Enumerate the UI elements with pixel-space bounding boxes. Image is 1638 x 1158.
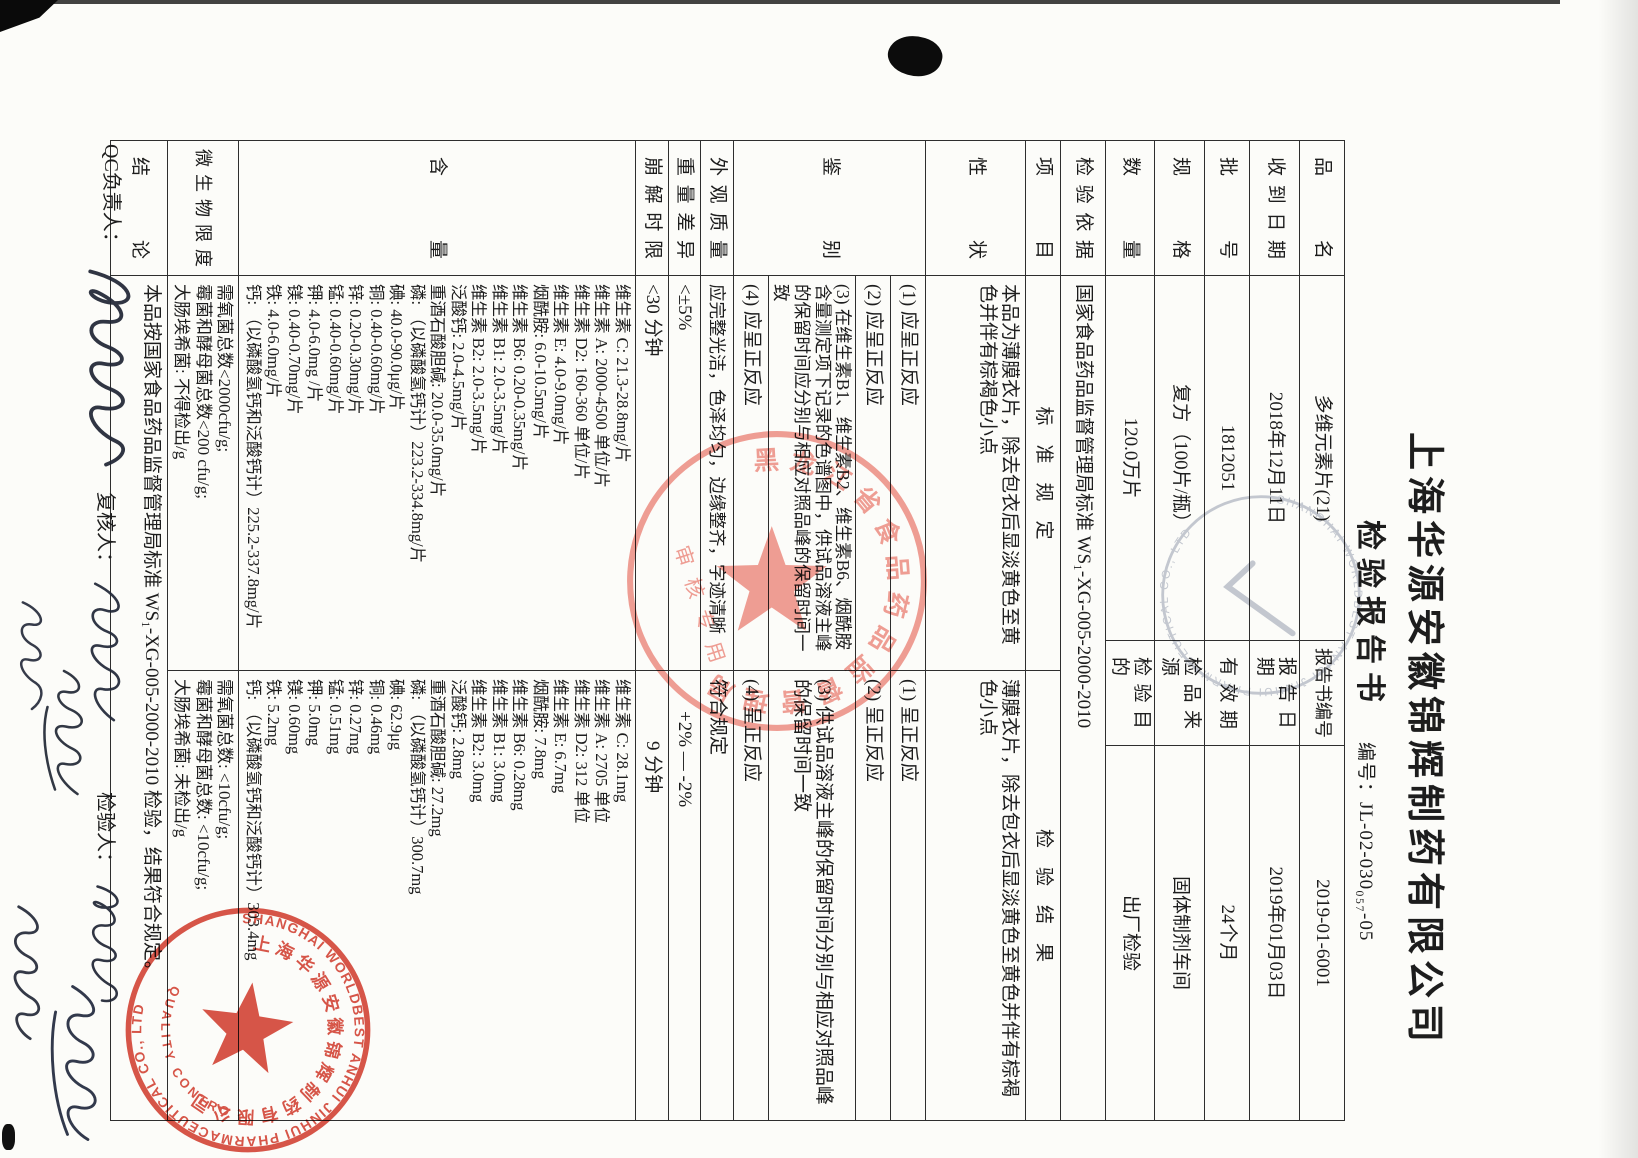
company-stamp-bottom-en: QUALITY CONTROL <box>135 870 408 1130</box>
row-label: 含 量 <box>239 141 636 276</box>
extra-signature-2 <box>0 882 52 1062</box>
svg-text:SHANGHAI WORLDBEST ANHUI JINHU: SHANGHAI WORLDBEST ANHUI JINHUI PHARMACE… <box>1158 493 1365 698</box>
scan-artifact-mark <box>2 1124 15 1150</box>
company-name: 上海华源安徽锦辉制药有限公司 <box>1401 360 1456 1120</box>
field-value: 24个月 <box>1205 746 1250 1121</box>
star-icon <box>710 514 844 651</box>
svg-text:QUALITY CONTROL: QUALITY CONTROL <box>135 870 408 1130</box>
doc-number-label: 编号： <box>1355 742 1376 802</box>
result-cell: (2) 呈正反应 <box>856 671 891 1121</box>
doc-number-value: JL-02-030₀₅₇-05 <box>1355 802 1376 941</box>
company-qc-stamp: SHANGHAI WORLDBEST ANHUI JINHUI PHARMACE… <box>88 870 408 1158</box>
faint-corporate-stamp: SHANGHAI WORLDBEST ANHUI JINHUI PHARMACE… <box>1136 470 1386 720</box>
faint-stamp-ring-text: SHANGHAI WORLDBEST ANHUI JINHUI PHARMACE… <box>1158 493 1365 698</box>
field-label: 规 格 <box>1155 141 1205 276</box>
row-label: 外观质量 <box>700 141 733 276</box>
scan-artifact-edge-shadow <box>1598 0 1638 1158</box>
row-label: 鉴 别 <box>733 141 926 276</box>
review-label: 复核人： <box>93 492 122 572</box>
inspector-label: 检验人： <box>93 792 122 872</box>
field-label: 数 量 <box>1105 141 1155 276</box>
column-header-result: 检 验 结 果 <box>1026 671 1061 1121</box>
field-label: 批 号 <box>1205 141 1250 276</box>
result-cell: 9 分钟 <box>635 671 668 1121</box>
field-value: 固体制剂车间 <box>1155 746 1205 1121</box>
column-header-item: 项 目 <box>1026 141 1061 276</box>
inspection-report-document: 上海华源安徽锦辉制药有限公司 检验报告书 编号：JL-02-030₀₅₇-05 … <box>0 0 1638 1158</box>
column-header-standard: 标 准 规 定 <box>1026 276 1061 671</box>
field-value: 2019-01-6001 <box>1300 746 1345 1121</box>
field-value: 2019年01月03日 <box>1250 746 1300 1121</box>
scan-artifact-top-edge <box>0 0 1560 4</box>
result-cell: (1) 呈正反应 <box>891 671 926 1121</box>
faint-stamp-mark-icon <box>1228 563 1293 633</box>
qc-label: QC负责人： <box>99 144 128 252</box>
standard-cell: 需氧菌总数<2000cfu/g; 霉菌和酵母菌总数<200 cfu/g; 大肠埃… <box>167 276 239 671</box>
row-label: 性 状 <box>926 141 1026 276</box>
standard-cell: 维生素 C: 21.3-28.8mg/片 维生素 A: 2000-4500 单位… <box>239 276 636 671</box>
scanned-report-page: 上海华源安徽锦辉制药有限公司 检验报告书 编号：JL-02-030₀₅₇-05 … <box>0 0 1638 1158</box>
row-label: 微生物限度 <box>167 141 239 276</box>
field-value: 出厂检验 <box>1105 746 1155 1121</box>
extra-signature-1 <box>0 592 56 722</box>
row-label: 崩解时限 <box>635 141 668 276</box>
field-label: 检验依据 <box>1060 141 1105 276</box>
province-stamp-subtext: 审 核 专 用 <box>669 543 730 669</box>
qc-signature <box>64 258 148 478</box>
star-icon <box>199 977 301 1083</box>
row-label: 重量差异 <box>668 141 700 276</box>
field-label: 收到日期 <box>1250 141 1300 276</box>
result-cell: 薄膜衣片，除去包衣后显淡黄色至黄色并伴有棕褐色小点 <box>926 671 1026 1121</box>
field-label: 品 名 <box>1300 141 1345 276</box>
field-value: 国家食品药品监督管理局标准 WS₁-XG-005-2000-2010 <box>1060 276 1105 1121</box>
doc-number: 编号：JL-02-030₀₅₇-05 <box>1355 742 1376 941</box>
